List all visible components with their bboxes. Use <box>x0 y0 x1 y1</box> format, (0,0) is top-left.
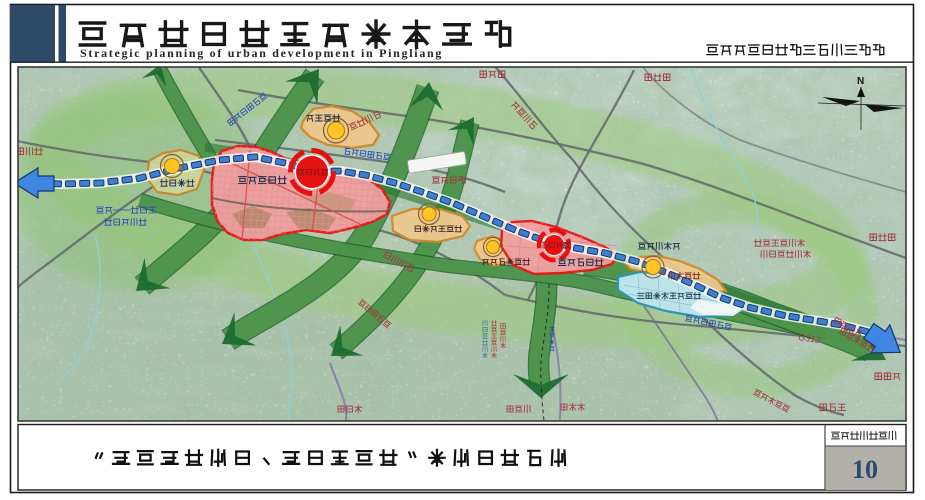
svg-text:10: 10 <box>852 455 878 484</box>
svg-text:N: N <box>857 76 864 87</box>
svg-text:Strategic planning of urban de: Strategic planning of urban development … <box>80 46 443 60</box>
